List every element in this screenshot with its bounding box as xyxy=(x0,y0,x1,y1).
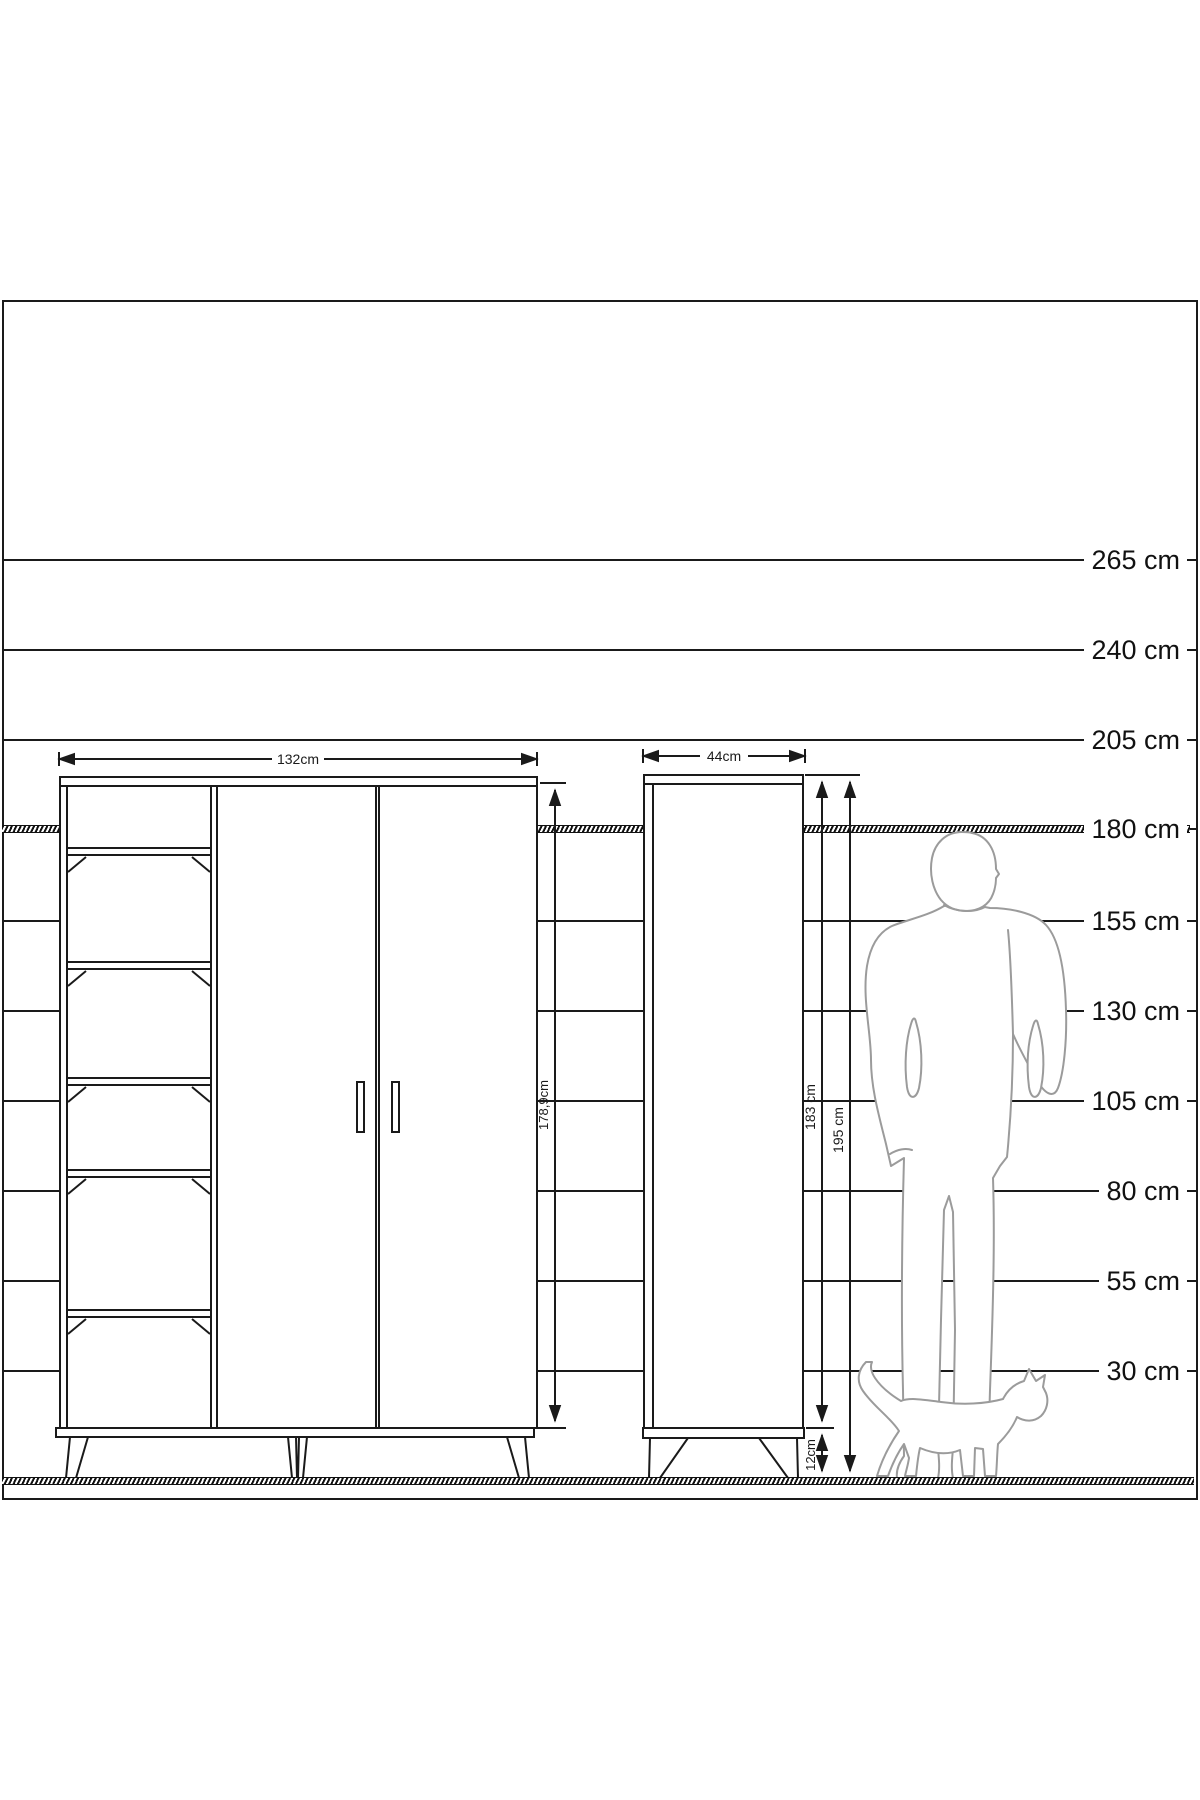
ruler-tick xyxy=(1190,920,1196,922)
man-head xyxy=(931,832,999,911)
ruler-tick xyxy=(1190,559,1196,561)
ruler-label-80: 80 cm xyxy=(1099,1173,1187,1209)
ground-line-hatched xyxy=(2,1477,1194,1485)
ruler-label-30: 30 cm xyxy=(1099,1353,1187,1389)
ruler-tick xyxy=(1190,739,1196,741)
side-total-height-label: 195 cm xyxy=(830,1107,846,1153)
ruler-label-130: 130 cm xyxy=(1084,993,1187,1029)
ruler-tick xyxy=(1190,828,1196,830)
front-cabinet-leg xyxy=(507,1437,529,1478)
door-handle-left xyxy=(357,1082,364,1132)
side-body-height-label: 183 cm xyxy=(802,1084,818,1130)
ruler-label-105: 105 cm xyxy=(1084,1083,1187,1119)
front-cabinet xyxy=(56,777,537,1478)
side-cabinet-leg xyxy=(649,1438,688,1478)
ruler-label-205: 205 cm xyxy=(1084,722,1187,758)
ruler-tick xyxy=(1190,1010,1196,1012)
side-leg-height-label: 12cm xyxy=(803,1439,818,1471)
side-cabinet xyxy=(643,775,804,1478)
technical-drawing: 132cm 178,9cm 44cm xyxy=(0,0,1200,1800)
ruler-tick xyxy=(1190,1370,1196,1372)
ruler-label-180: 180 cm xyxy=(1084,811,1187,847)
ruler-tick xyxy=(1190,1100,1196,1102)
front-cabinet-leg xyxy=(66,1437,88,1478)
front-width-label: 132cm xyxy=(277,751,319,767)
side-width-label: 44cm xyxy=(707,748,741,764)
drawing-sheet: 132cm 178,9cm 44cm xyxy=(0,0,1200,1800)
ruler-label-265: 265 cm xyxy=(1084,542,1187,578)
ruler-label-55: 55 cm xyxy=(1099,1263,1187,1299)
front-cabinet-leg xyxy=(298,1437,307,1478)
side-cabinet-carcass xyxy=(644,775,803,1428)
ruler-label-240: 240 cm xyxy=(1084,632,1187,668)
front-cabinet-plinth xyxy=(56,1428,534,1437)
front-height-label: 178,9cm xyxy=(536,1080,551,1130)
side-cabinet-leg xyxy=(759,1438,798,1478)
front-cabinet-leg xyxy=(288,1437,297,1478)
side-cabinet-plinth xyxy=(643,1428,804,1438)
ruler-tick xyxy=(1190,649,1196,651)
ruler-tick xyxy=(1190,1280,1196,1282)
ruler-tick xyxy=(1190,1190,1196,1192)
ruler-label-155: 155 cm xyxy=(1084,903,1187,939)
front-cabinet-carcass xyxy=(60,777,537,1428)
door-handle-right xyxy=(392,1082,399,1132)
